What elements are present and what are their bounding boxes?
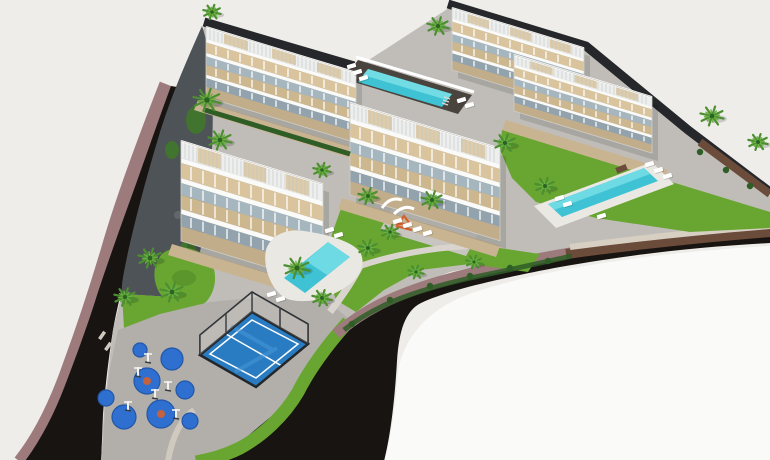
gym-pad: [176, 381, 194, 399]
gym-pad: [112, 405, 136, 429]
bush: [349, 321, 355, 327]
gym-pad: [133, 343, 147, 357]
render-viewport: aerial-3d-render-residential-complex: [0, 0, 770, 460]
bush: [697, 149, 703, 155]
bush: [387, 297, 393, 303]
bush: [467, 273, 473, 279]
bush: [747, 183, 753, 189]
site-plan-render: aerial-3d-render-residential-complex: [0, 0, 770, 460]
bush: [427, 283, 433, 289]
bush: [545, 258, 551, 264]
gym-pad: [161, 348, 183, 370]
gym-pad: [182, 413, 198, 429]
gym-pad: [98, 390, 114, 406]
bush: [723, 167, 729, 173]
bush: [507, 265, 513, 271]
